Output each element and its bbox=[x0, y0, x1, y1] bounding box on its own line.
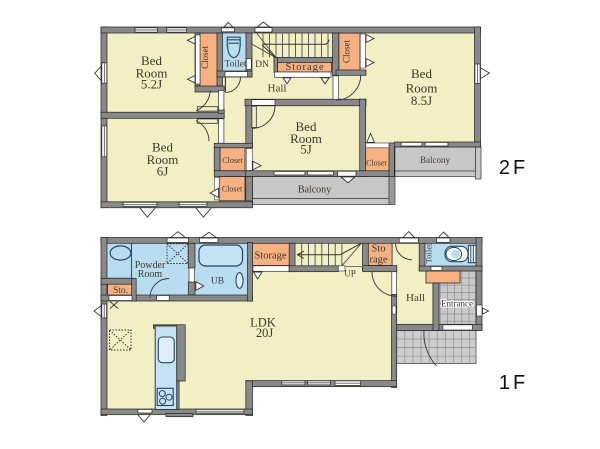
svg-text:Storage: Storage bbox=[285, 62, 324, 73]
svg-text:Sto.: Sto. bbox=[113, 286, 128, 296]
svg-text:8.5J: 8.5J bbox=[411, 93, 432, 108]
svg-text:Bed: Bed bbox=[411, 66, 432, 81]
svg-text:Sto: Sto bbox=[371, 244, 385, 255]
svg-text:1F: 1F bbox=[499, 372, 528, 394]
svg-text:Toilet: Toilet bbox=[224, 60, 246, 70]
svg-text:Storage: Storage bbox=[254, 251, 286, 262]
svg-text:Hall: Hall bbox=[268, 83, 287, 95]
svg-text:2F: 2F bbox=[499, 157, 528, 179]
svg-text:Balcony: Balcony bbox=[298, 185, 331, 196]
svg-text:DN: DN bbox=[255, 60, 269, 70]
svg-text:Balcony: Balcony bbox=[420, 155, 450, 165]
svg-text:rage: rage bbox=[369, 255, 387, 266]
svg-text:Closet: Closet bbox=[200, 45, 210, 69]
svg-text:Entrance: Entrance bbox=[441, 299, 473, 309]
svg-text:5.2J: 5.2J bbox=[141, 77, 162, 92]
svg-text:6J: 6J bbox=[157, 164, 169, 179]
svg-text:Closet: Closet bbox=[222, 156, 243, 165]
svg-text:UB: UB bbox=[211, 277, 224, 287]
svg-text:UP: UP bbox=[344, 269, 356, 279]
svg-text:Hall: Hall bbox=[406, 292, 425, 304]
svg-text:Closet: Closet bbox=[222, 185, 243, 194]
svg-text:Closet: Closet bbox=[366, 159, 387, 168]
svg-text:Closet: Closet bbox=[341, 40, 351, 64]
svg-text:20J: 20J bbox=[256, 326, 274, 340]
svg-text:Toilet: Toilet bbox=[424, 243, 434, 263]
svg-text:5J: 5J bbox=[300, 142, 312, 157]
svg-text:Room: Room bbox=[138, 269, 163, 280]
